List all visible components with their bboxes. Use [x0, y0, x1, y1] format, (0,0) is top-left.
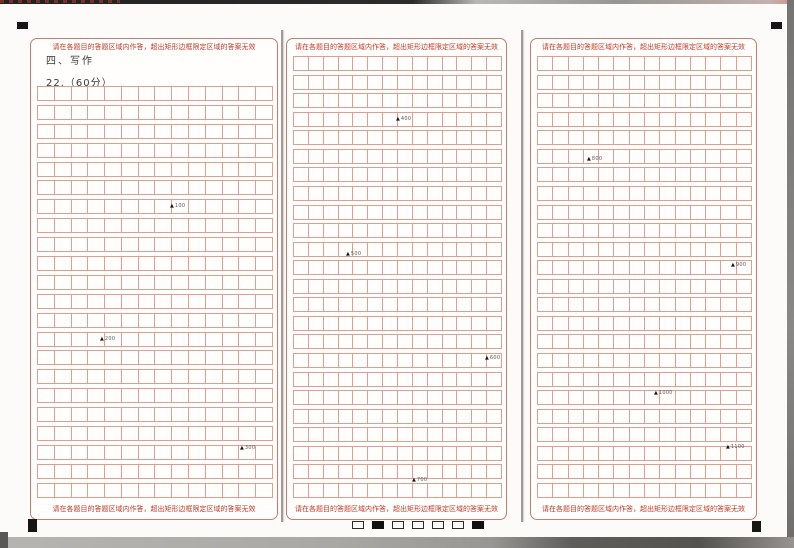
grid-cell	[367, 168, 382, 181]
grid-cell	[138, 238, 155, 251]
grid-row	[293, 372, 502, 387]
grid-cell	[308, 243, 323, 256]
grid-cell	[338, 335, 353, 348]
grid-cell	[323, 243, 338, 256]
grid-cell	[486, 391, 501, 404]
grid-cell	[294, 150, 308, 163]
registration-mark-top-left	[17, 22, 28, 29]
grid-cell	[367, 150, 382, 163]
grid-cell	[427, 243, 442, 256]
grid-cell	[397, 261, 412, 274]
grid-cell	[171, 163, 188, 176]
grid-cell	[38, 333, 54, 346]
grid-cell	[598, 261, 613, 274]
grid-cell	[427, 335, 442, 348]
grid-cell	[598, 131, 613, 144]
grid-cell	[171, 389, 188, 402]
grid-cell	[583, 484, 598, 497]
grid-cell	[538, 168, 552, 181]
grid-cell	[486, 187, 501, 200]
grid-cell	[629, 335, 644, 348]
grid-cell	[308, 428, 323, 441]
grid-cell	[427, 187, 442, 200]
grid-cell	[338, 280, 353, 293]
grid-cell	[568, 354, 583, 367]
registration-mark-bottom-left	[28, 519, 37, 532]
grid-cell	[138, 106, 155, 119]
grid-cell	[659, 57, 674, 70]
instruction-bottom: 请在各题目的答题区域内作答，超出矩形边框限定区域的答案无效	[287, 505, 506, 514]
grid-cell	[629, 280, 644, 293]
grid-cell	[552, 354, 567, 367]
grid-cell	[323, 224, 338, 237]
grid-cell	[121, 238, 138, 251]
grid-cell	[456, 206, 471, 219]
grid-cell	[308, 57, 323, 70]
grid-cell	[690, 206, 705, 219]
grid-cell	[568, 243, 583, 256]
grid-cell	[690, 335, 705, 348]
grid-cell	[188, 238, 205, 251]
grid-cell	[552, 150, 567, 163]
grid-cell	[456, 57, 471, 70]
grid-cell	[552, 261, 567, 274]
grid-cell	[442, 410, 457, 423]
grid-row	[293, 186, 502, 201]
grid-cell	[87, 370, 104, 383]
grid-cell	[442, 76, 457, 89]
grid-row	[537, 167, 752, 182]
grid-cell	[308, 354, 323, 367]
grid-cell	[138, 219, 155, 232]
grid-cell	[104, 238, 121, 251]
section-title: 四、写作	[46, 52, 113, 67]
grid-cell	[121, 125, 138, 138]
grid-row	[293, 56, 502, 71]
grid-cell	[705, 113, 720, 126]
grid-cell	[54, 408, 71, 421]
grid-cell	[367, 224, 382, 237]
grid-cell	[456, 76, 471, 89]
grid-cell	[552, 113, 567, 126]
grid-cell	[352, 206, 367, 219]
grid-cell	[568, 280, 583, 293]
grid-cell	[538, 113, 552, 126]
grid-cell	[675, 354, 690, 367]
triangle-icon: ▲	[396, 116, 400, 122]
grid-cell	[598, 465, 613, 478]
grid-row	[37, 350, 273, 365]
grid-cell	[138, 125, 155, 138]
grid-cell	[690, 280, 705, 293]
grid-row	[293, 446, 502, 461]
grid-cell	[538, 224, 552, 237]
grid-cell	[382, 131, 397, 144]
grid-cell	[87, 427, 104, 440]
triangle-icon: ▲	[485, 355, 489, 361]
triangle-icon: ▲	[170, 203, 174, 209]
grid-cell	[412, 484, 427, 497]
word-count-marker: ▲600	[485, 355, 500, 361]
grid-cell	[675, 206, 690, 219]
grid-cell	[382, 76, 397, 89]
grid-cell	[675, 447, 690, 460]
grid-row	[37, 426, 273, 441]
grid-cell	[352, 484, 367, 497]
grid-cell	[238, 295, 255, 308]
grid-cell	[323, 280, 338, 293]
grid-cell	[294, 410, 308, 423]
grid-cell	[38, 219, 54, 232]
grid-cell	[720, 224, 735, 237]
word-count-marker: ▲400	[396, 116, 411, 122]
grid-cell	[720, 113, 735, 126]
grid-cell	[205, 408, 222, 421]
instruction-top: 请在各题目的答题区域内作答，超出矩形边框限定区域的答案无效	[531, 43, 756, 52]
grid-cell	[294, 206, 308, 219]
grid-cell	[294, 465, 308, 478]
grid-cell	[382, 187, 397, 200]
grid-cell	[690, 261, 705, 274]
grid-cell	[412, 168, 427, 181]
grid-cell	[720, 57, 735, 70]
grid-cell	[367, 298, 382, 311]
grid-cell	[308, 280, 323, 293]
grid-cell	[471, 428, 486, 441]
grid-cell	[138, 295, 155, 308]
grid-cell	[412, 113, 427, 126]
grid-cell	[456, 150, 471, 163]
grid-cell	[54, 257, 71, 270]
grid-cell	[568, 187, 583, 200]
grid-cell	[222, 295, 239, 308]
grid-cell	[255, 200, 272, 213]
grid-cell	[690, 298, 705, 311]
grid-cell	[352, 168, 367, 181]
grid-cell	[486, 335, 501, 348]
grid-cell	[690, 150, 705, 163]
grid-row	[537, 372, 752, 387]
grid-cell	[323, 298, 338, 311]
grid-cell	[659, 484, 674, 497]
grid-cell	[598, 57, 613, 70]
grid-cell	[382, 428, 397, 441]
grid-cell	[659, 243, 674, 256]
grid-cell	[486, 76, 501, 89]
grid-cell	[705, 428, 720, 441]
grid-cell	[382, 465, 397, 478]
grid-cell	[188, 484, 205, 497]
grid-cell	[171, 370, 188, 383]
grid-cell	[456, 354, 471, 367]
grid-cell	[188, 295, 205, 308]
grid-cell	[171, 219, 188, 232]
grid-cell	[338, 317, 353, 330]
grid-row	[537, 205, 752, 220]
grid-cell	[255, 427, 272, 440]
grid-cell	[659, 94, 674, 107]
grid-cell	[427, 465, 442, 478]
grid-cell	[583, 243, 598, 256]
grid-cell	[456, 261, 471, 274]
grid-cell	[690, 465, 705, 478]
grid-cell	[613, 94, 628, 107]
grid-cell	[598, 298, 613, 311]
grid-cell	[367, 57, 382, 70]
grid-cell	[720, 168, 735, 181]
grid-cell	[659, 410, 674, 423]
grid-cell	[238, 370, 255, 383]
grid-cell	[598, 243, 613, 256]
grid-cell	[308, 131, 323, 144]
grid-cell	[397, 224, 412, 237]
grid-cell	[629, 94, 644, 107]
grid-cell	[294, 280, 308, 293]
grid-cell	[138, 314, 155, 327]
grid-cell	[154, 389, 171, 402]
grid-cell	[154, 87, 171, 100]
grid-cell	[613, 150, 628, 163]
grid-cell	[659, 206, 674, 219]
grid-cell	[352, 261, 367, 274]
grid-row	[537, 93, 752, 108]
grid-cell	[538, 206, 552, 219]
grid-row	[293, 316, 502, 331]
grid-cell	[427, 113, 442, 126]
grid-cell	[613, 298, 628, 311]
grid-row	[537, 279, 752, 294]
grid-cell	[238, 219, 255, 232]
grid-cell	[171, 484, 188, 497]
grid-cell	[736, 373, 751, 386]
grid-cell	[323, 94, 338, 107]
grid-cell	[188, 314, 205, 327]
grid-cell	[538, 317, 552, 330]
grid-cell	[255, 219, 272, 232]
grid-cell	[367, 131, 382, 144]
grid-cell	[644, 131, 659, 144]
grid-cell	[629, 373, 644, 386]
grid-cell	[382, 447, 397, 460]
grid-cell	[471, 224, 486, 237]
grid-cell	[471, 131, 486, 144]
grid-cell	[397, 280, 412, 293]
answer-sheet-scan: 请在各题目的答题区域内作答，超出矩形边框限定区域的答案无效 四、写作 22.（6…	[0, 0, 794, 548]
grid-cell	[705, 261, 720, 274]
sync-mark-filled	[372, 521, 384, 529]
grid-cell	[238, 314, 255, 327]
grid-cell	[598, 94, 613, 107]
grid-cell	[352, 428, 367, 441]
grid-cell	[323, 354, 338, 367]
grid-cell	[308, 410, 323, 423]
grid-cell	[442, 94, 457, 107]
grid-cell	[583, 354, 598, 367]
grid-cell	[552, 206, 567, 219]
grid-row	[537, 56, 752, 71]
grid-cell	[154, 408, 171, 421]
grid-cell	[613, 224, 628, 237]
grid-cell	[397, 428, 412, 441]
grid-cell	[427, 76, 442, 89]
grid-cell	[205, 257, 222, 270]
scan-edge-corner	[0, 532, 8, 548]
grid-cell	[705, 131, 720, 144]
grid-cell	[87, 106, 104, 119]
grid-cell	[308, 206, 323, 219]
grid-cell	[222, 238, 239, 251]
grid-cell	[121, 314, 138, 327]
grid-cell	[352, 150, 367, 163]
grid-cell	[71, 219, 88, 232]
grid-cell	[613, 76, 628, 89]
grid-cell	[720, 410, 735, 423]
grid-cell	[442, 428, 457, 441]
grid-cell	[154, 106, 171, 119]
grid-cell	[456, 410, 471, 423]
grid-cell	[188, 370, 205, 383]
grid-cell	[486, 94, 501, 107]
grid-cell	[456, 131, 471, 144]
grid-cell	[352, 410, 367, 423]
grid-cell	[104, 370, 121, 383]
grid-cell	[154, 370, 171, 383]
grid-cell	[427, 354, 442, 367]
grid-cell	[54, 181, 71, 194]
sync-mark-empty	[352, 521, 364, 529]
grid-cell	[552, 243, 567, 256]
grid-cell	[54, 446, 71, 459]
grid-cell	[367, 428, 382, 441]
grid-cell	[538, 410, 552, 423]
grid-cell	[71, 181, 88, 194]
grid-cell	[613, 428, 628, 441]
word-count-marker: ▲1100	[726, 444, 745, 450]
grid-cell	[720, 150, 735, 163]
grid-cell	[54, 238, 71, 251]
grid-cell	[171, 446, 188, 459]
grid-cell	[568, 410, 583, 423]
grid-cell	[644, 410, 659, 423]
grid-cell	[705, 335, 720, 348]
grid-cell	[255, 163, 272, 176]
grid-cell	[583, 298, 598, 311]
grid-cell	[397, 335, 412, 348]
grid-cell	[138, 389, 155, 402]
grid-cell	[121, 484, 138, 497]
grid-cell	[456, 335, 471, 348]
grid-cell	[352, 391, 367, 404]
grid-cell	[323, 447, 338, 460]
grid-cell	[308, 317, 323, 330]
grid-cell	[705, 243, 720, 256]
grid-cell	[205, 219, 222, 232]
grid-cell	[121, 333, 138, 346]
grid-row	[37, 143, 273, 158]
grid-cell	[736, 484, 751, 497]
grid-cell	[87, 351, 104, 364]
grid-row	[537, 483, 752, 498]
grid-cell	[471, 206, 486, 219]
grid-cell	[538, 391, 552, 404]
grid-cell	[338, 428, 353, 441]
grid-cell	[598, 187, 613, 200]
grid-cell	[367, 447, 382, 460]
sync-mark-empty	[412, 521, 424, 529]
grid-cell	[675, 224, 690, 237]
grid-cell	[121, 446, 138, 459]
grid-cell	[720, 391, 735, 404]
grid-cell	[121, 465, 138, 478]
grid-cell	[71, 389, 88, 402]
grid-cell	[552, 335, 567, 348]
grid-cell	[205, 484, 222, 497]
grid-cell	[367, 317, 382, 330]
grid-cell	[382, 484, 397, 497]
grid-cell	[323, 131, 338, 144]
grid-cell	[308, 447, 323, 460]
grid-cell	[308, 187, 323, 200]
grid-cell	[644, 187, 659, 200]
grid-cell	[690, 410, 705, 423]
grid-cell	[442, 261, 457, 274]
grid-row	[37, 86, 273, 101]
grid-cell	[613, 354, 628, 367]
grid-cell	[138, 181, 155, 194]
grid-row	[293, 483, 502, 498]
grid-row	[37, 313, 273, 328]
grid-row	[293, 223, 502, 238]
grid-row	[293, 334, 502, 349]
grid-cell	[222, 465, 239, 478]
grid-cell	[222, 125, 239, 138]
grid-cell	[538, 465, 552, 478]
grid-cell	[705, 224, 720, 237]
grid-cell	[154, 314, 171, 327]
grid-cell	[205, 200, 222, 213]
grid-cell	[87, 144, 104, 157]
grid-cell	[629, 206, 644, 219]
grid-cell	[690, 76, 705, 89]
grid-cell	[222, 219, 239, 232]
grid-cell	[352, 224, 367, 237]
grid-cell	[568, 57, 583, 70]
grid-cell	[659, 131, 674, 144]
grid-row	[537, 334, 752, 349]
grid-cell	[471, 187, 486, 200]
grid-cell	[352, 335, 367, 348]
triangle-icon: ▲	[731, 262, 735, 268]
grid-cell	[471, 94, 486, 107]
grid-cell	[397, 465, 412, 478]
scan-edge-right	[787, 0, 794, 548]
grid-cell	[442, 391, 457, 404]
grid-cell	[552, 428, 567, 441]
grid-cell	[222, 446, 239, 459]
grid-cell	[188, 163, 205, 176]
grid-cell	[352, 94, 367, 107]
grid-cell	[205, 106, 222, 119]
grid-cell	[442, 113, 457, 126]
grid-row	[537, 260, 752, 275]
grid-cell	[323, 391, 338, 404]
grid-cell	[583, 447, 598, 460]
grid-cell	[323, 261, 338, 274]
grid-cell	[736, 465, 751, 478]
grid-cell	[294, 168, 308, 181]
grid-cell	[87, 276, 104, 289]
grid-cell	[188, 389, 205, 402]
